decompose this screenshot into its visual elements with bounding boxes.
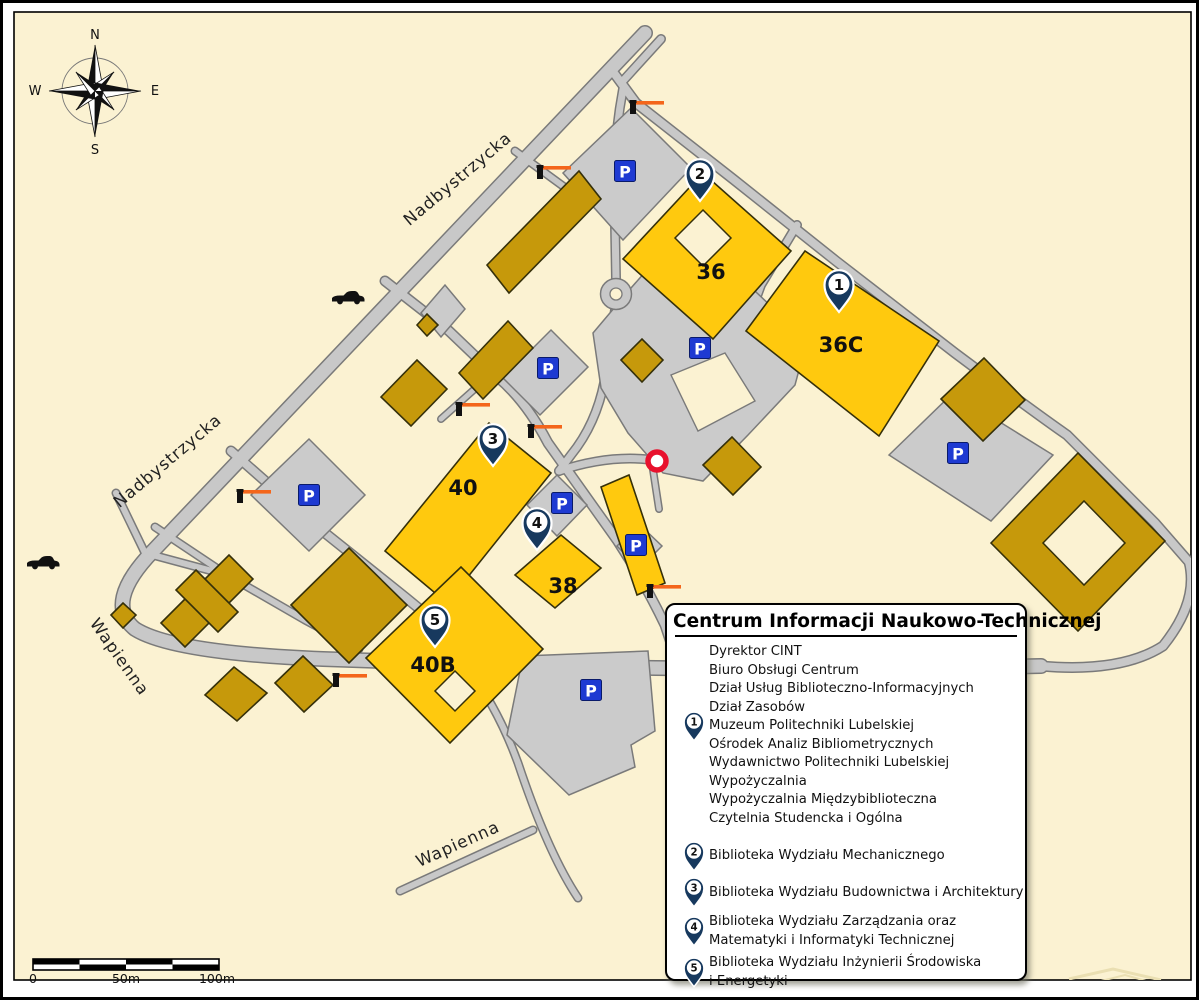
- legend-pin-4-icon: 4: [679, 923, 709, 940]
- parking-icon: P: [299, 485, 320, 506]
- legend-title: Centrum Informacji Naukowo-Technicznej: [667, 605, 1025, 634]
- svg-text:P: P: [556, 495, 568, 514]
- compass-n-label: N: [90, 28, 100, 43]
- svg-text:P: P: [542, 360, 554, 379]
- legend-entry: Biuro Obsługi Centrum: [709, 662, 1017, 681]
- legend-entry: Biblioteka Wydziału Mechanicznego: [709, 847, 1017, 866]
- legend-pin-1-icon: 1: [679, 643, 709, 742]
- svg-text:P: P: [694, 340, 706, 359]
- building-label-36C: 36C: [819, 333, 864, 357]
- location-pin-5[interactable]: 5: [684, 958, 704, 986]
- legend-entry: Wypożyczalnia: [709, 773, 1017, 792]
- svg-text:4: 4: [532, 514, 542, 532]
- legend-pin-2-icon: 2: [679, 848, 709, 865]
- entrance-ring-icon: [648, 452, 666, 470]
- location-pin-2[interactable]: 2: [684, 842, 704, 870]
- legend-group-1: 1Dyrektor CINTBiuro Obsługi CentrumDział…: [679, 643, 1017, 828]
- legend-group-5: 5Biblioteka Wydziału Inżynierii Środowis…: [679, 954, 1017, 991]
- legend-entry: Wydawnictwo Politechniki Lubelskiej: [709, 754, 1017, 773]
- scale-label: 100m: [199, 971, 235, 986]
- legend-entry: Matematyki i Informatyki Technicznej: [709, 932, 1017, 951]
- legend-entry: Dział Zasobów: [709, 699, 1017, 718]
- svg-text:4: 4: [690, 923, 697, 934]
- legend-entry: Muzeum Politechniki Lubelskiej: [709, 717, 1017, 736]
- svg-text:P: P: [630, 537, 642, 556]
- building-label-40B: 40B: [410, 653, 455, 677]
- parking-icon: P: [538, 358, 559, 379]
- legend-entry: Ośrodek Analiz Bibliometrycznych: [709, 736, 1017, 755]
- location-pin-4[interactable]: 4: [684, 917, 704, 945]
- svg-text:5: 5: [690, 964, 697, 975]
- building-label-36: 36: [696, 260, 725, 284]
- legend-items: 1Dyrektor CINTBiuro Obsługi CentrumDział…: [667, 642, 1025, 991]
- svg-text:P: P: [585, 682, 597, 701]
- legend-entry: Dyrektor CINT: [709, 643, 1017, 662]
- location-pin-3[interactable]: 3: [684, 878, 704, 906]
- building-label-38: 38: [548, 574, 577, 598]
- legend-pin-3-icon: 3: [679, 884, 709, 901]
- svg-text:P: P: [619, 163, 631, 182]
- parking-icon: P: [552, 493, 573, 514]
- legend-entry: Biblioteka Wydziału Budownictwa i Archit…: [709, 884, 1023, 903]
- svg-text:3: 3: [488, 430, 498, 448]
- location-pin-1[interactable]: 1: [684, 712, 704, 740]
- campus-map-page: NadbystrzyckaNadbystrzyckaWapiennaWapien…: [0, 0, 1199, 1000]
- legend-title-rule: [675, 635, 1017, 637]
- legend-entry: Biblioteka Wydziału Zarządzania oraz: [709, 913, 1017, 932]
- svg-text:5: 5: [430, 611, 440, 629]
- parking-icon: P: [626, 535, 647, 556]
- legend-entry: Dział Usług Biblioteczno-Informacyjnych: [709, 680, 1017, 699]
- legend-entry: i Energetyki: [709, 973, 1017, 992]
- legend-entry: Biblioteka Wydziału Inżynierii Środowisk…: [709, 954, 1017, 973]
- legend-entry: Wypożyczalnia Międzybiblioteczna: [709, 791, 1017, 810]
- compass-e-label: E: [151, 84, 159, 99]
- svg-text:2: 2: [695, 165, 705, 183]
- roundabout: [601, 279, 632, 310]
- svg-text:2: 2: [690, 847, 697, 858]
- parking-icon: P: [948, 443, 969, 464]
- legend-entry: Czytelnia Studencka i Ogólna: [709, 810, 1017, 829]
- svg-text:P: P: [952, 445, 964, 464]
- legend-group-3: 3Biblioteka Wydziału Budownictwa i Archi…: [679, 884, 1017, 903]
- legend-group-4: 4Biblioteka Wydziału Zarządzania orazMat…: [679, 913, 1017, 950]
- legend-group-2: 2Biblioteka Wydziału Mechanicznego: [679, 847, 1017, 866]
- compass-s-label: S: [91, 143, 99, 158]
- compass-w-label: W: [29, 84, 42, 99]
- svg-text:1: 1: [834, 276, 844, 294]
- parking-icon: P: [615, 161, 636, 182]
- building-label-40: 40: [448, 476, 477, 500]
- legend-panel: Centrum Informacji Naukowo-Technicznej 1…: [665, 603, 1027, 981]
- scale-label: 50m: [112, 971, 140, 986]
- svg-text:1: 1: [690, 718, 697, 729]
- scale-label: 0: [29, 971, 37, 986]
- legend-pin-5-icon: 5: [679, 964, 709, 981]
- svg-text:3: 3: [690, 884, 697, 895]
- parking-icon: P: [690, 338, 711, 359]
- parking-icon: P: [581, 680, 602, 701]
- svg-text:P: P: [303, 487, 315, 506]
